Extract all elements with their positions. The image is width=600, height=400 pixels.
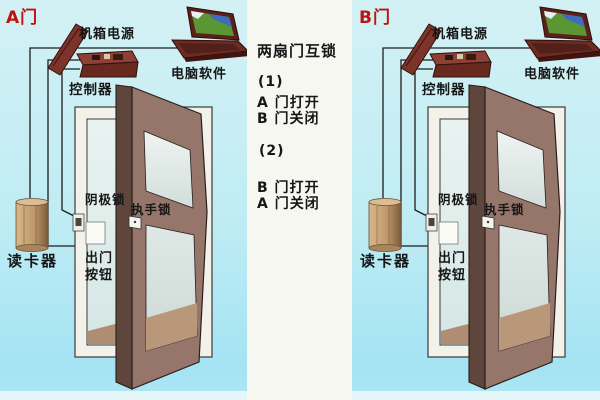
case2-number: (2) [259,143,285,159]
cathode-lock-device [426,214,437,231]
cathode-lock-label: 阴极锁 [438,192,479,207]
cathode-lock-device [73,214,84,231]
controller-label: 控制器 [422,82,466,98]
interlock-title: 两扇门互锁 [257,40,337,61]
controller-label: 控制器 [69,82,113,98]
card-reader-device [16,199,48,252]
center-panel: 两扇门互锁 (1) A 门打开 B 门关闭 (2) B 门打开 A 门关闭 [247,0,352,400]
box-front [80,62,138,77]
door-leaf [116,85,207,389]
computer [525,7,600,62]
door-leaf-edge [469,85,485,389]
exit-button-device [86,222,105,244]
power-box-label: 机箱电源 [79,27,135,43]
case1-line2: B 门关闭 [257,108,320,128]
interlock-diagram-stage: 两扇门互锁 (1) A 门打开 B 门关闭 (2) B 门打开 A 门关闭 [0,0,600,400]
door-b-label: B门 [359,8,391,28]
box-front [433,62,491,77]
card-reader-label: 读卡器 [360,252,411,270]
case2-line2: A 门关闭 [257,193,320,213]
door-a-label: A门 [6,8,38,28]
door-leaf-edge [116,85,132,389]
handle-lock-label: 执手锁 [484,202,525,217]
computer [172,7,247,62]
card-reader-label: 读卡器 [7,252,58,270]
exit-button-device [439,222,458,244]
door-b-section: B门 机箱电源 电脑软件 控制器 阴极锁 执手锁 读卡器 出门 按钮 [353,0,600,400]
card-reader-device [369,199,401,252]
case1-number: (1) [258,74,284,90]
door-a-section: A门 机箱电源 电脑软件 控制器 阴极锁 执手锁 读卡器 出门 按钮 [0,0,247,400]
handle-lock-label: 执手锁 [131,202,172,217]
computer-software-label: 电脑软件 [524,67,580,83]
cathode-lock-label: 阴极锁 [85,192,126,207]
exit-button-label: 出门 按钮 [85,251,113,285]
power-box-label: 机箱电源 [432,27,488,43]
door-leaf [469,85,560,389]
computer-software-label: 电脑软件 [171,67,227,83]
exit-button-label: 出门 按钮 [438,251,466,285]
